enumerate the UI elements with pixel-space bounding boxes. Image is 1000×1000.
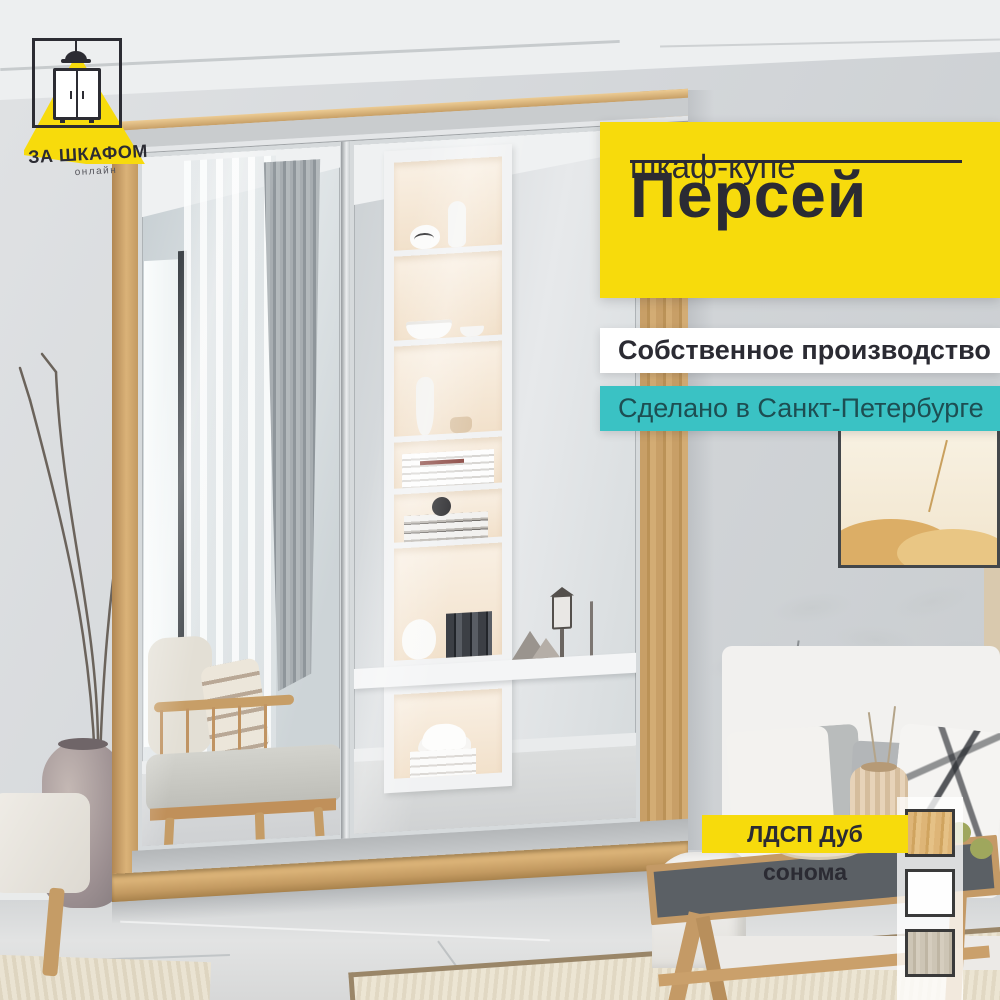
material-label: ЛДСП Дуб сонома: [702, 815, 908, 853]
swatch-white: [905, 869, 955, 917]
mirror-glare: [354, 129, 636, 834]
wardrobe-icon-foot: [89, 119, 94, 123]
wardrobe-icon-foot: [60, 119, 65, 123]
badge-made-in-spb: Сделано в Санкт-Петербурге: [600, 386, 1000, 431]
rug: [0, 954, 211, 1000]
vase-mouth: [58, 738, 108, 750]
mirror-door-left: [138, 142, 344, 851]
swatch-oak-sonoma: [905, 809, 955, 857]
wardrobe-icon-handle: [70, 91, 72, 99]
wardrobe-icon-handle: [82, 91, 84, 99]
product-banner: шкаф-купе Персей: [600, 122, 1000, 298]
table-leg: [696, 916, 730, 1000]
product-name: Персей: [630, 158, 867, 232]
mirror-door-right: [350, 125, 640, 839]
wardrobe-left-stile: [112, 125, 138, 902]
green-pear: [970, 838, 993, 859]
corner-chair: [0, 793, 90, 893]
wall-art-frame: [838, 428, 1000, 568]
product-ad-canvas: ЗА ШКАФОМ онлайн шкаф-купе Персей Собств…: [0, 0, 1000, 1000]
swatch-light-wood: [905, 929, 955, 977]
mirror-glare: [142, 146, 340, 846]
wardrobe-icon: [53, 68, 101, 120]
badge-own-production: Собственное производство: [600, 328, 1000, 373]
store-logo: ЗА ШКАФОМ онлайн: [22, 28, 154, 170]
art-shape: [928, 440, 948, 512]
